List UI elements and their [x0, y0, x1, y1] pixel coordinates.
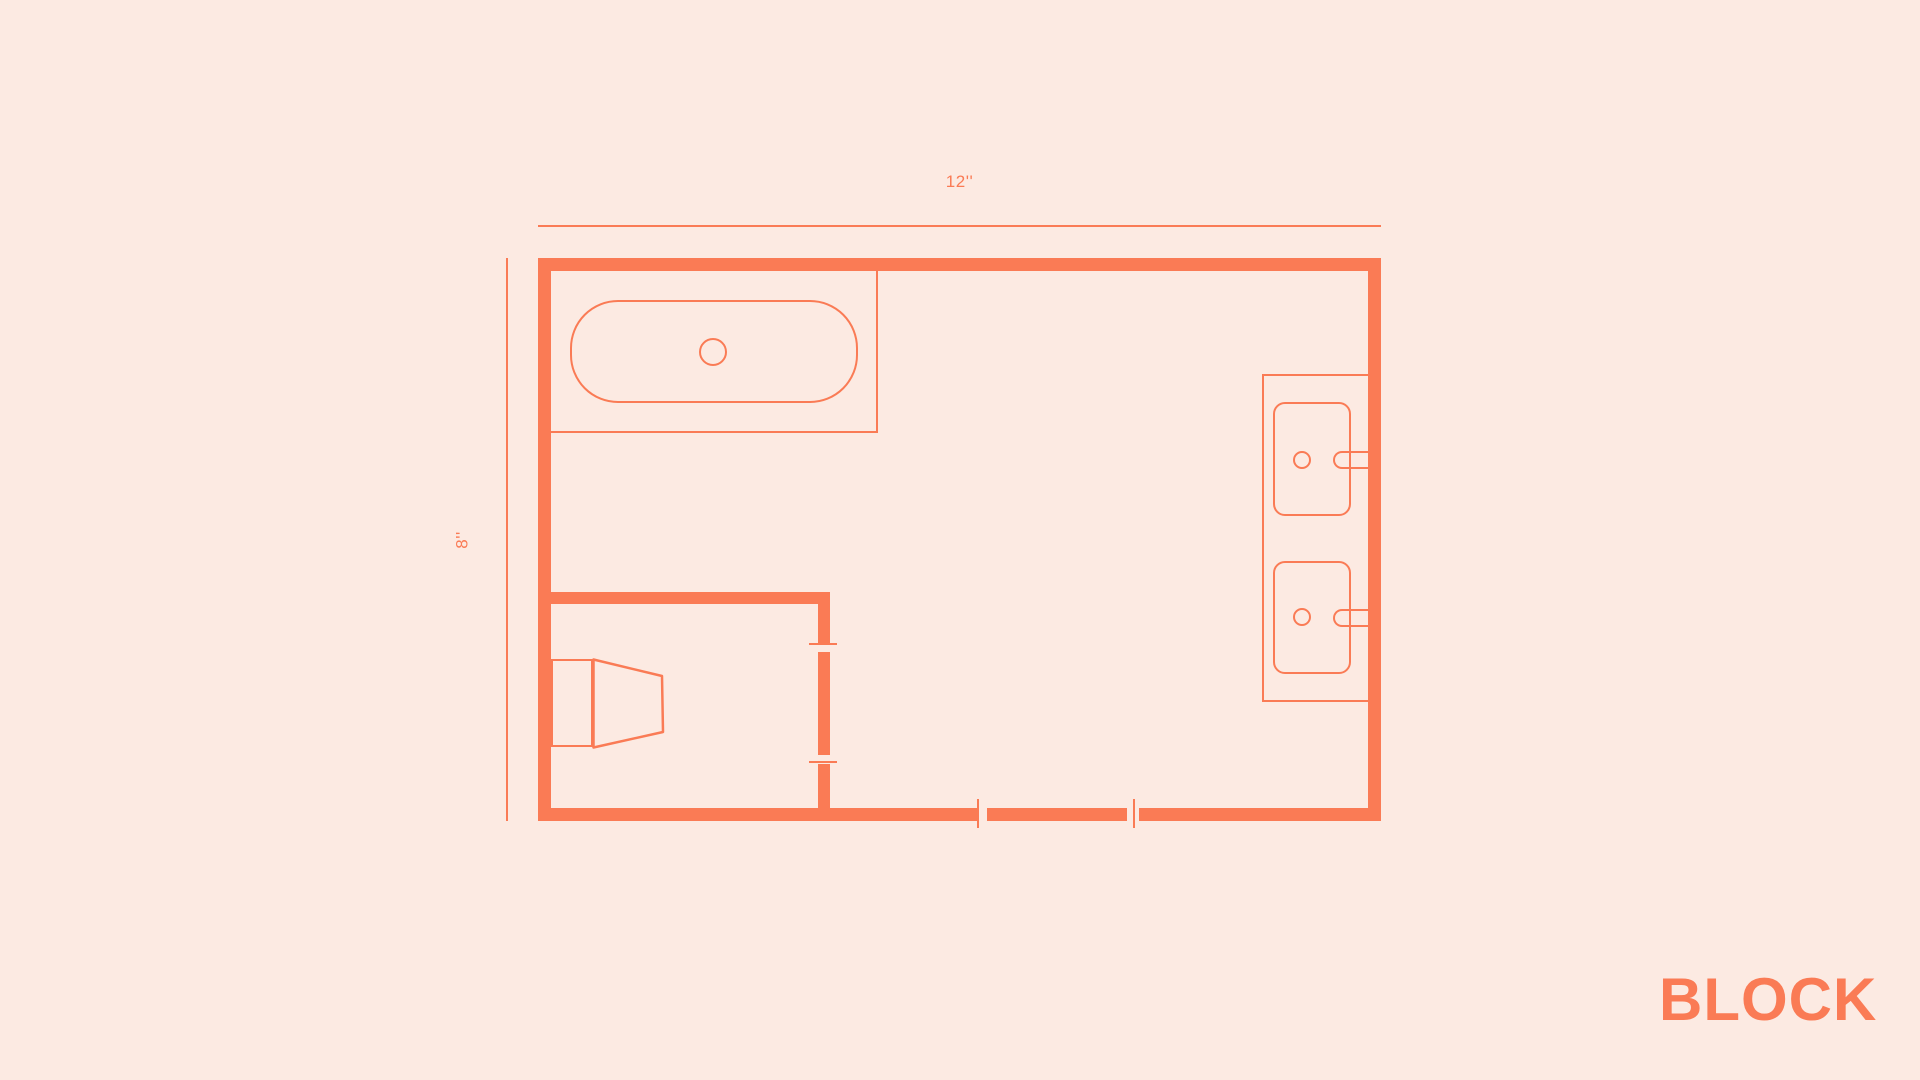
wall-right: [1368, 258, 1381, 821]
sink-faucet-top-icon: [1333, 451, 1369, 469]
wall-bottom-right-segment: [1139, 808, 1381, 821]
toilet-tank: [551, 659, 593, 747]
entry-door-leaf: [987, 808, 1127, 821]
dimension-label-top: 12'': [538, 172, 1381, 192]
dimension-line-left: [506, 258, 508, 821]
bathtub-drain-icon: [699, 338, 727, 366]
entry-door-jamb-right: [1133, 799, 1135, 828]
sink-drain-top-icon: [1293, 451, 1311, 469]
partition-wall-vertical-lower: [818, 764, 830, 808]
dimension-label-left-wrap: 8'': [433, 510, 493, 570]
entry-door-jamb-left: [977, 799, 979, 828]
toilet-bowl: [592, 658, 666, 750]
dimension-line-top: [538, 225, 1381, 227]
dimension-label-left: 8'': [453, 531, 473, 548]
floor-plan-canvas: 12'' 8'' BLOCK: [0, 0, 1920, 1080]
water-closet-door-jamb-bottom: [809, 761, 837, 763]
sink-faucet-bottom-icon: [1333, 609, 1369, 627]
water-closet-door-jamb-top: [809, 643, 837, 645]
wall-bottom-left-segment: [538, 808, 977, 821]
wall-top: [538, 258, 1381, 271]
sink-drain-bottom-icon: [1293, 608, 1311, 626]
partition-wall-vertical-upper: [818, 592, 830, 643]
block-logo: BLOCK: [1659, 970, 1877, 1030]
partition-wall-horizontal: [549, 592, 830, 604]
wall-left: [538, 258, 551, 821]
water-closet-door-leaf: [818, 652, 830, 755]
